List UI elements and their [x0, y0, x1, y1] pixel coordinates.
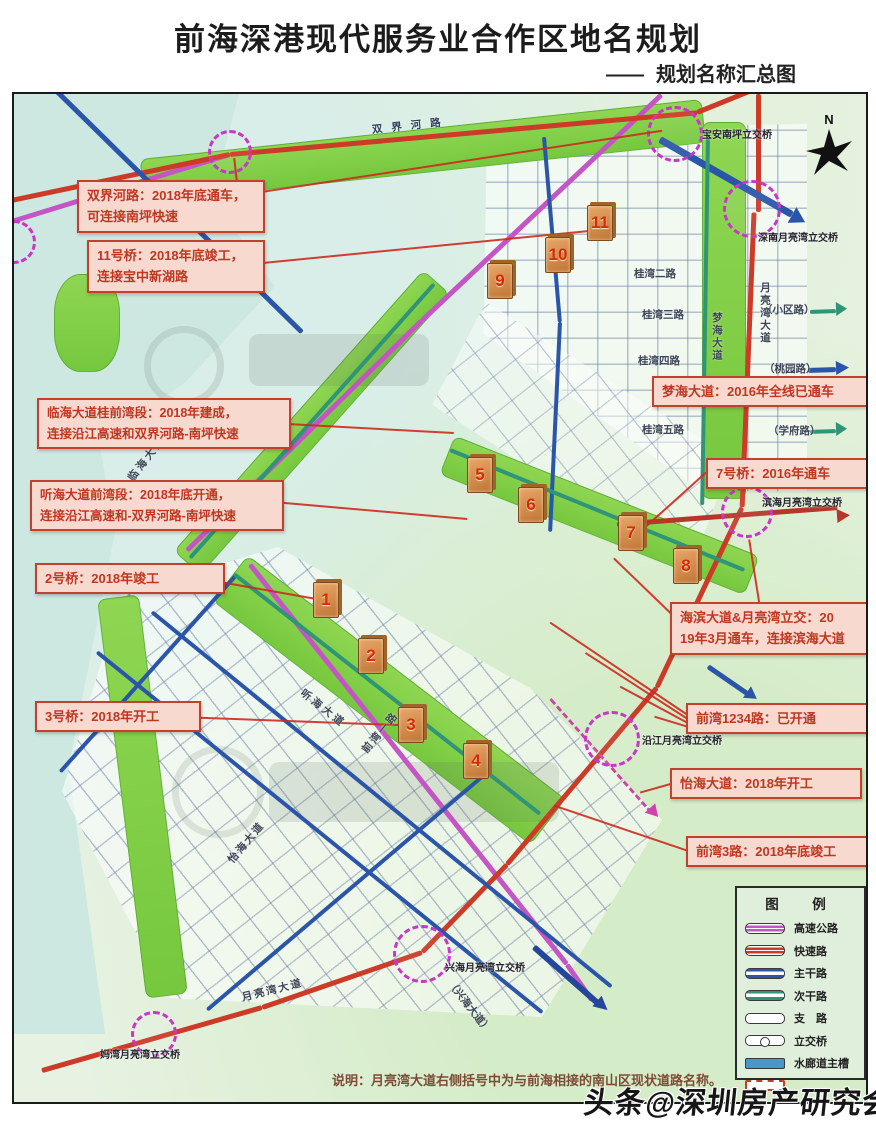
road-label-guiwan-4: 桂湾四路	[638, 353, 680, 368]
road-label-taoyuan: （桃园路）	[764, 361, 817, 376]
legend-row-interchange: 立交桥	[745, 1030, 856, 1053]
road-shuangjiehe-exit	[696, 92, 752, 114]
interchange-circle-nw	[208, 130, 252, 174]
interchange-label-mawan: 妈湾月亮湾立交桥	[100, 1046, 180, 1061]
road-label-guiwan-2: 桂湾二路	[634, 266, 676, 281]
binhai-exit-arrow-icon	[837, 508, 851, 523]
road-qianwan-exit	[707, 664, 752, 697]
legend-row-branch-road: 支 路	[745, 1007, 856, 1030]
road-label-guiwan-3: 桂湾三路	[642, 307, 684, 322]
bridge-marker-11: 11	[587, 205, 613, 241]
page-subtitle: ——规划名称汇总图	[606, 58, 796, 87]
north-label: N	[802, 112, 856, 127]
interchange-label-baoan-nanping: 宝安南坪立交桥	[702, 126, 772, 141]
road-label-yueliangwan: 月亮湾大道	[758, 282, 773, 345]
interchange-circle-xinghai	[393, 925, 451, 983]
leader-yihai	[640, 783, 672, 793]
bridge-marker-8: 8	[673, 548, 699, 584]
road-label-xuefu: （学府路）	[768, 423, 821, 438]
road-label-menghai: 梦海大道	[710, 312, 725, 362]
legend-title: 图 例	[745, 893, 856, 913]
map-canvas: 宝安南坪立交桥 深南月亮湾立交桥 滨海月亮湾立交桥 沿江月亮湾立交桥 兴海月亮湾…	[12, 92, 868, 1104]
legend-label: 次干路	[794, 988, 827, 1004]
legend-label: 立交桥	[794, 1033, 827, 1049]
legend-label: 高速公路	[794, 920, 838, 936]
legend-row-expressway: 高速公路	[745, 917, 856, 940]
interchange-circle-yanjiang	[584, 711, 640, 767]
interchange-circle-baoan-nanping	[647, 106, 703, 162]
legend-row-secondary-road: 次干路	[745, 985, 856, 1008]
legend-label: 支 路	[794, 1010, 827, 1026]
map-header: 前海深港现代服务业合作区地名规划 ——规划名称汇总图	[0, 0, 876, 92]
leader-tinghai	[262, 500, 467, 520]
north-arrow-icon: N	[802, 112, 856, 190]
annotation-bridge-7: 7号桥：2016年通车	[706, 458, 868, 489]
bridge-marker-1: 1	[313, 582, 339, 618]
annotation-tinghai-avenue: 听海大道前湾段：2018年底开通， 连接沿江高速和-双界河路-南坪快速	[30, 480, 284, 531]
annotation-haibin-interchange: 海滨大道&月亮湾立交：20 19年3月通车，连接滨海大道	[670, 602, 868, 655]
main-road-swatch-icon	[745, 968, 785, 979]
bridge-marker-7: 7	[618, 515, 644, 551]
interchange-swatch-icon	[745, 1035, 785, 1046]
bridge-marker-10: 10	[545, 237, 571, 273]
bridge-marker-6: 6	[518, 487, 544, 523]
interchange-label-binhai: 滨海月亮湾立交桥	[762, 494, 842, 509]
fast-road-swatch-icon	[745, 945, 785, 956]
compass-glyph	[804, 127, 854, 179]
bridge-marker-3: 3	[398, 707, 424, 743]
legend-label: 主干路	[794, 965, 827, 981]
water-channel-swatch-icon	[745, 1058, 785, 1069]
bridge-marker-2: 2	[358, 638, 384, 674]
annotation-linhai-avenue: 临海大道桂前湾段：2018年建成， 连接沿江高速和双界河路-南坪快速	[37, 398, 291, 449]
watermark-text: 头条@深圳房产研究会	[582, 1078, 876, 1122]
map-legend: 图 例 高速公路 快速路 主干路 次干路 支 路	[735, 886, 866, 1080]
legend-row-main-road: 主干路	[745, 962, 856, 985]
annotation-qianwan-1234: 前湾1234路：已开通	[686, 703, 868, 734]
annotation-yihai-avenue: 怡海大道：2018年开工	[670, 768, 862, 799]
interchange-label-shennan: 深南月亮湾立交桥	[758, 229, 838, 244]
legend-row-water-channel: 水廊道主槽	[745, 1052, 856, 1075]
legend-row-fast-road: 快速路	[745, 940, 856, 963]
annotation-bridge-3: 3号桥：2018年开工	[35, 701, 201, 732]
faint-watermark-circle	[144, 326, 224, 406]
annotation-menghai-avenue: 梦海大道：2016年全线已通车	[652, 376, 868, 407]
annotation-bridge-11: 11号桥：2018年底竣工， 连接宝中新湖路	[87, 240, 265, 293]
branch-road-swatch-icon	[745, 1013, 785, 1024]
road-label-guiwan-5: 桂湾五路	[642, 422, 684, 437]
leader-qianwan1234-d	[654, 716, 687, 727]
legend-label: 水廊道主槽	[794, 1055, 849, 1071]
xuefu-exit-arrow-icon	[836, 422, 847, 436]
taoyuan-exit-arrow-icon	[836, 361, 849, 375]
annotation-shuangjiehe-road: 双界河路：2018年底通车， 可连接南坪快速	[77, 180, 265, 233]
secondary-road-swatch-icon	[745, 990, 785, 1001]
interchange-label-xinghai: 兴海月亮湾立交桥	[445, 959, 525, 974]
leader-haibin-a	[613, 558, 672, 615]
subtitle-dash: ——	[606, 64, 642, 87]
subtitle-text: 规划名称汇总图	[656, 64, 796, 86]
page-title: 前海深港现代服务业合作区地名规划	[0, 14, 876, 59]
expressway-swatch-icon	[745, 923, 785, 934]
bridge-marker-4: 4	[463, 743, 489, 779]
annotation-qianwan-3: 前湾3路：2018年底竣工	[686, 836, 868, 867]
xiaoqu-exit-arrow-icon	[836, 302, 847, 316]
planning-map-sheet: 前海深港现代服务业合作区地名规划 ——规划名称汇总图	[0, 0, 876, 1130]
annotation-bridge-2: 2号桥：2018年竣工	[35, 563, 225, 594]
legend-label: 快速路	[794, 943, 827, 959]
bridge-marker-9: 9	[487, 263, 513, 299]
bridge-marker-5: 5	[467, 457, 493, 493]
